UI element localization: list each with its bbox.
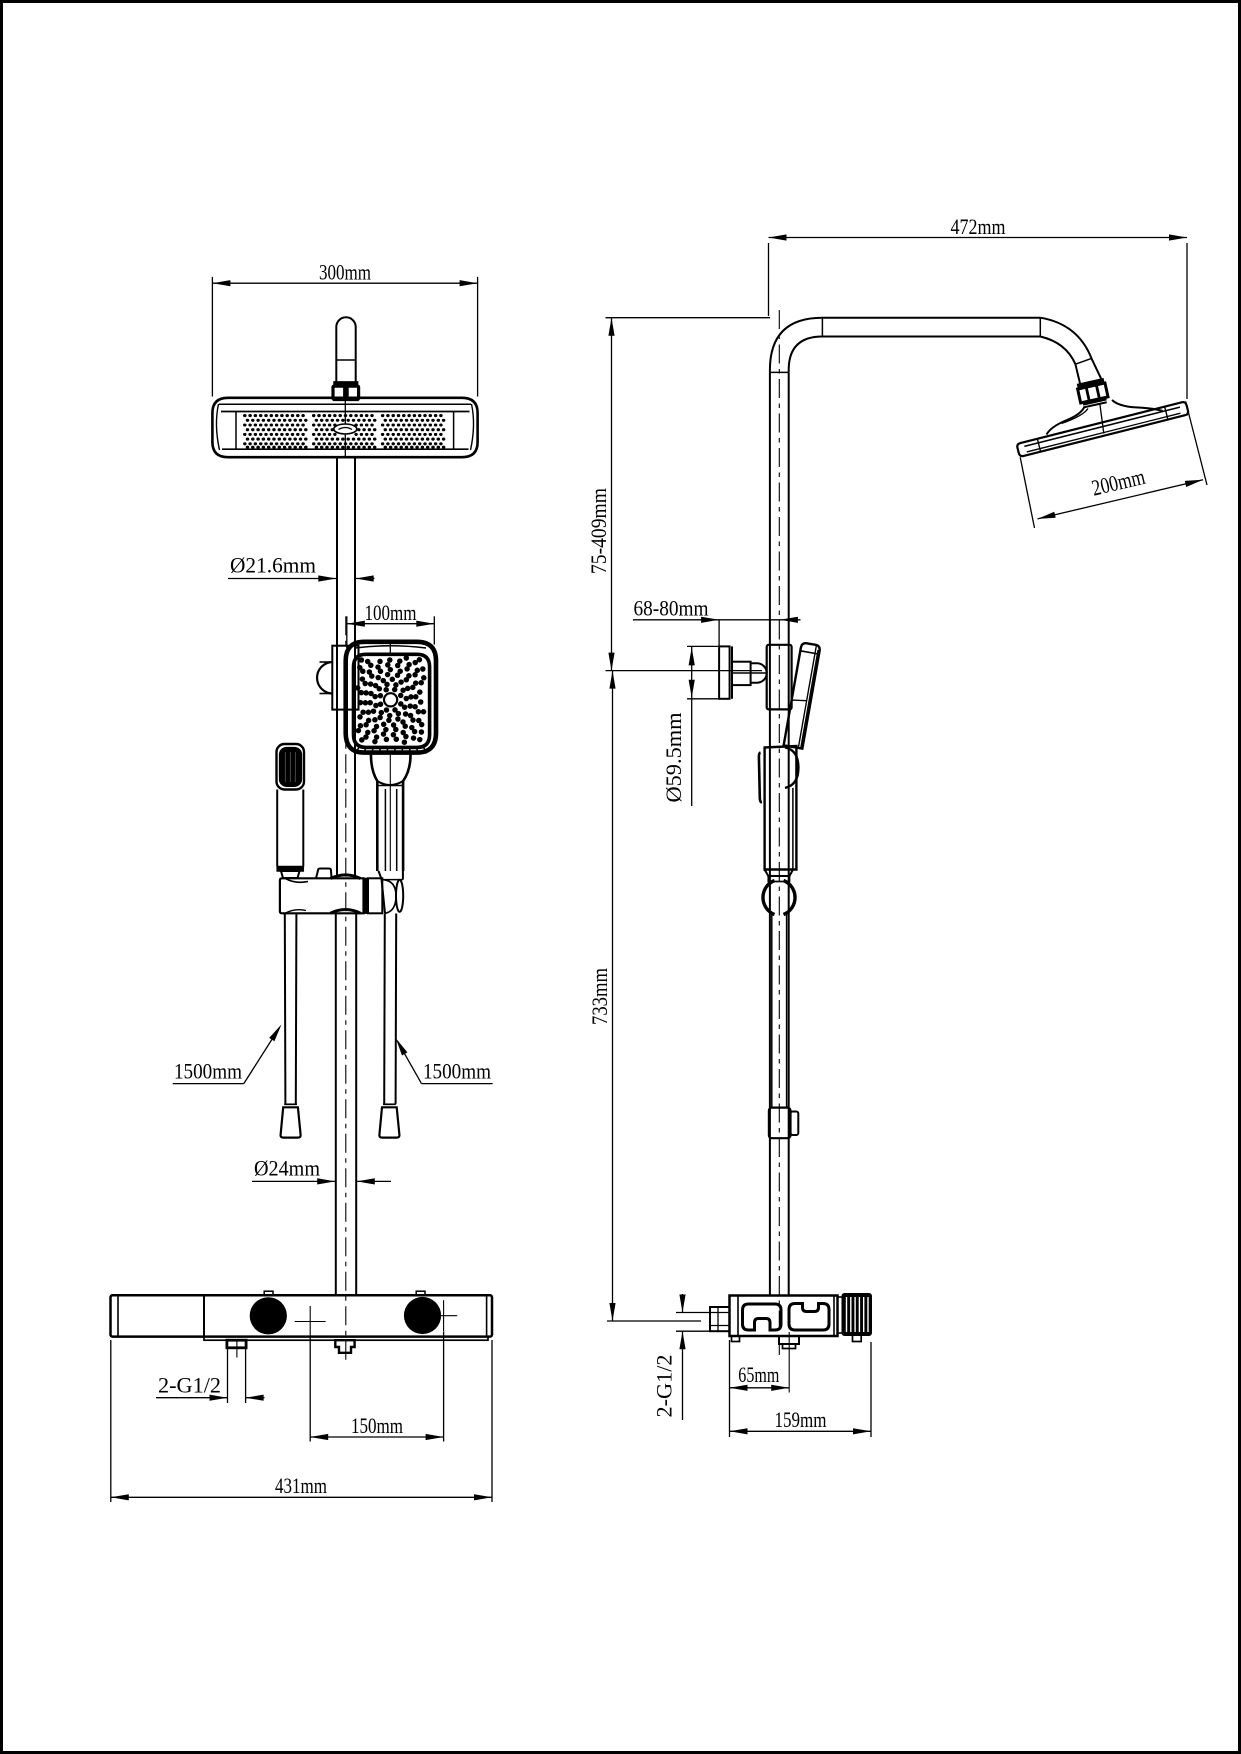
- svg-text:159mm: 159mm: [775, 1407, 827, 1432]
- svg-text:100mm: 100mm: [365, 600, 417, 625]
- svg-text:Ø24mm: Ø24mm: [254, 1156, 321, 1181]
- svg-text:2-G1/2: 2-G1/2: [652, 1355, 677, 1418]
- svg-text:Ø59.5mm: Ø59.5mm: [661, 712, 686, 803]
- svg-text:65mm: 65mm: [738, 1362, 779, 1387]
- svg-text:Ø21.6mm: Ø21.6mm: [230, 553, 317, 578]
- svg-text:150mm: 150mm: [351, 1413, 403, 1438]
- svg-text:431mm: 431mm: [275, 1473, 327, 1498]
- svg-text:733mm: 733mm: [587, 968, 612, 1025]
- svg-text:68-80mm: 68-80mm: [634, 595, 709, 620]
- svg-text:1500mm: 1500mm: [423, 1059, 491, 1084]
- svg-text:300mm: 300mm: [319, 260, 371, 285]
- svg-text:2-G1/2: 2-G1/2: [158, 1373, 221, 1398]
- svg-text:1500mm: 1500mm: [174, 1059, 242, 1084]
- svg-text:75-409mm: 75-409mm: [586, 487, 611, 574]
- svg-text:472mm: 472mm: [951, 214, 1006, 239]
